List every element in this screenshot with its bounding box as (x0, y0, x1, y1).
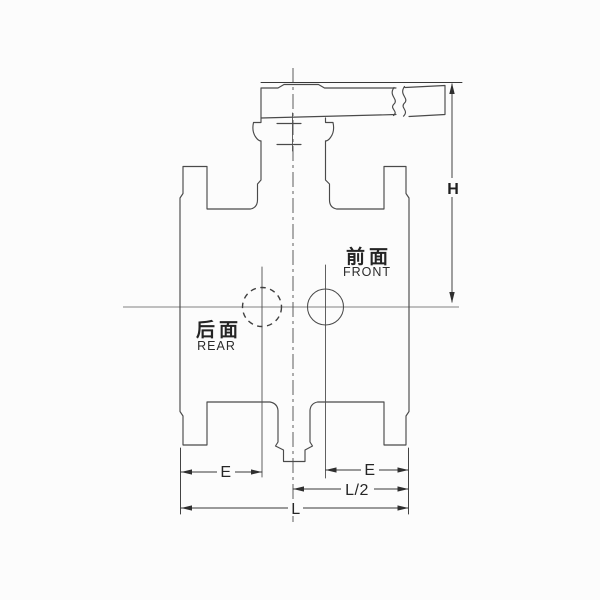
e-left-arrow-left (181, 469, 192, 474)
view-labels: 前面 FRONT 后面 REAR (196, 245, 392, 353)
h-arrow-up (449, 83, 454, 94)
h-dimension-label: H (447, 181, 459, 198)
rear-label-en: REAR (197, 339, 236, 353)
wrench-ear-right (326, 118, 334, 141)
l-half-arrow-left (293, 486, 304, 491)
valve-engineering-drawing: H E E L/2 L 前面 FRONT 后面 REAR (0, 0, 600, 600)
front-label-en: FRONT (343, 265, 391, 279)
l-half-arrow-right (398, 486, 409, 491)
handle-end-piece (405, 86, 445, 117)
handle-lever (261, 83, 462, 119)
e-right-label: E (364, 462, 375, 479)
break-symbol-left (392, 88, 395, 116)
rear-label-cn: 后面 (196, 319, 242, 341)
valve-body-outline (180, 141, 409, 462)
l-half-label: L/2 (345, 482, 369, 499)
valve-body (180, 141, 409, 462)
handle-bar (261, 85, 396, 119)
l-label: L (291, 501, 300, 518)
l-arrow-left (181, 505, 192, 510)
e-right-arrow-left (326, 467, 337, 472)
e-left-label: E (220, 464, 231, 481)
bottom-dimensions: E E L/2 L (181, 448, 409, 518)
drawing-canvas: H E E L/2 L 前面 FRONT 后面 REAR (0, 0, 600, 600)
wrench-ear-left (253, 118, 261, 141)
e-right-arrow-right (398, 467, 409, 472)
h-arrow-down (449, 292, 454, 303)
l-arrow-right (398, 505, 409, 510)
break-symbol-right (403, 87, 406, 117)
dimension-h: H (444, 83, 461, 303)
e-left-arrow-right (251, 469, 262, 474)
